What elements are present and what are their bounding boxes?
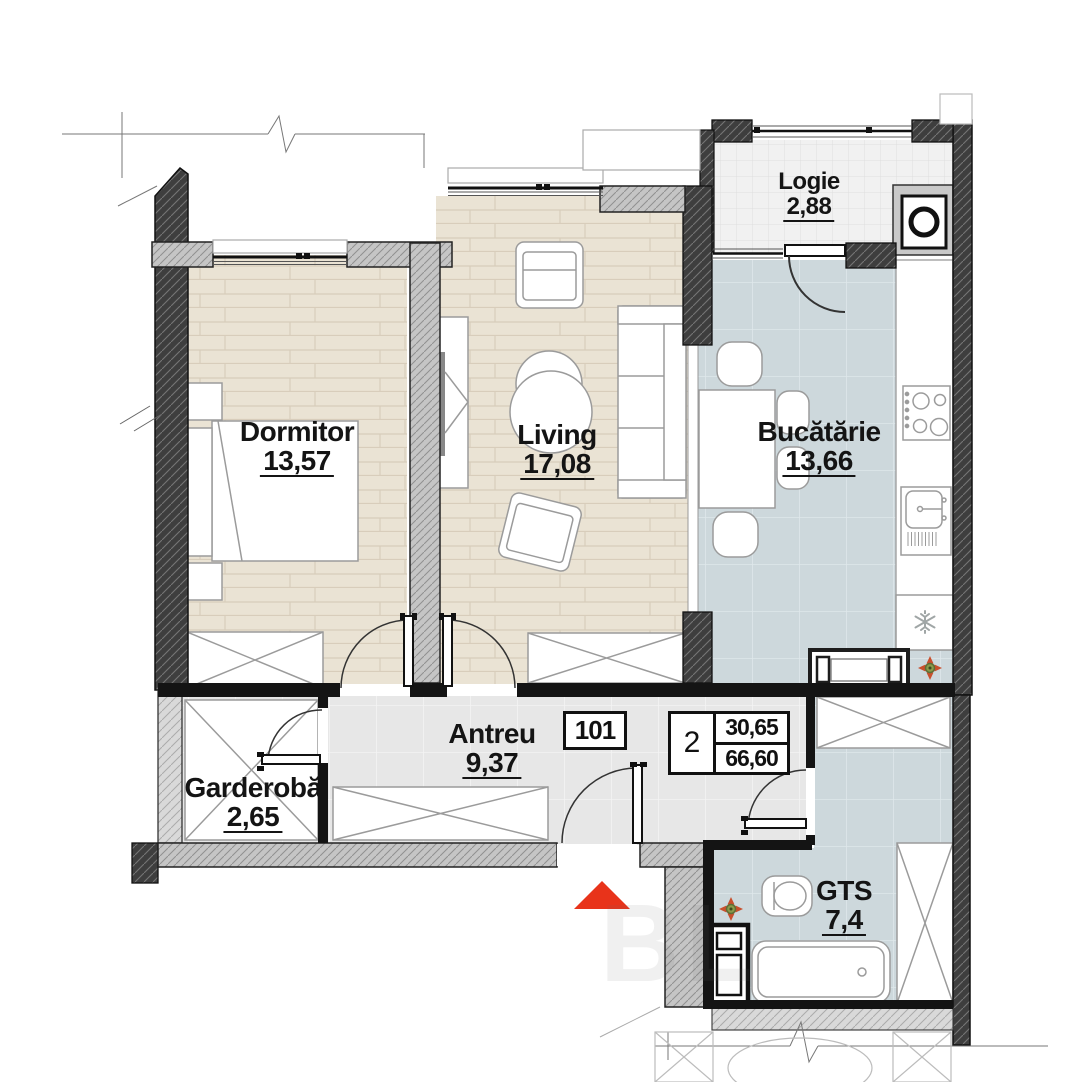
floor-plan-svg <box>0 0 1066 1082</box>
room-name: Dormitor <box>240 417 354 446</box>
garderoba-wall <box>318 697 328 708</box>
exterior-wall-right-lower <box>953 695 970 1045</box>
room-label-bucatarie: Bucătărie 13,66 <box>757 417 880 477</box>
toilet-icon <box>762 876 812 916</box>
gts-left-wall <box>703 848 714 1005</box>
chair-icon <box>713 512 758 557</box>
gts-bottom-wall <box>703 1000 953 1009</box>
living-area-value: 30,65 <box>716 714 787 745</box>
room-name: Living <box>517 420 596 449</box>
wardrobe-icon <box>817 697 950 748</box>
exterior-sill <box>940 94 972 124</box>
wardrobe-icon <box>333 787 548 840</box>
living-top-wall <box>600 186 685 212</box>
room-label-logie: Logie 2,88 <box>778 170 840 222</box>
sink-icon <box>901 487 951 555</box>
washing-machine-icon <box>710 925 748 1003</box>
entrance-arrow-icon <box>574 881 630 909</box>
headboard <box>186 428 212 556</box>
wardrobe-icon <box>187 632 323 688</box>
apartment-number-badge: 101 <box>563 711 627 750</box>
break-symbol <box>268 116 295 152</box>
nightstand <box>187 383 222 420</box>
room-label-antreu: Antreu 9,37 <box>448 719 535 779</box>
exterior-sill <box>583 130 700 170</box>
gts-outer-wall <box>665 867 708 1007</box>
room-area: 7,4 <box>822 905 865 936</box>
window-sill <box>213 240 347 253</box>
logie-top-wall <box>712 120 752 142</box>
room-label-living: Living 17,08 <box>517 420 596 480</box>
wall-stub <box>132 843 158 883</box>
antreu-gts-wall <box>806 697 815 768</box>
gts-bottom-band <box>712 1008 953 1030</box>
bench-icon <box>810 650 908 688</box>
armchair-icon <box>516 242 583 308</box>
floor-plan-page: BL Dormitor 13,57 Living 17,08 Bucătărie… <box>0 0 1066 1082</box>
room-label-dormitor: Dormitor 13,57 <box>240 417 354 477</box>
room-area: 13,66 <box>782 446 856 477</box>
antreu-top-wall <box>517 683 955 697</box>
exterior-wall-right <box>953 120 972 695</box>
room-name: Garderobă <box>184 773 321 802</box>
window-sill <box>448 168 603 183</box>
wardrobe-icon <box>897 843 953 1003</box>
gts-top-wall <box>703 840 812 850</box>
kitchen-top-wall <box>846 243 896 268</box>
room-label-gts: GTS 7,4 <box>816 876 872 936</box>
antreu-top-wall <box>410 683 447 697</box>
room-label-garderoba: Garderobă 2,65 <box>184 773 321 833</box>
kitchen-counter <box>896 260 953 650</box>
dormitor-top-wall <box>152 242 213 267</box>
neighbor-outlines <box>655 1032 951 1082</box>
antreu-top-wall <box>158 683 340 697</box>
nightstand <box>187 563 222 600</box>
rooms-count: 2 <box>671 714 716 772</box>
sofa-icon <box>618 306 686 498</box>
room-area: 2,65 <box>224 802 283 833</box>
room-name: Antreu <box>448 719 535 748</box>
bottom-wall <box>640 843 712 867</box>
living-kitchen-wall-upper <box>683 186 712 345</box>
room-name: GTS <box>816 876 872 905</box>
living-kitchen-wall-lower <box>683 612 712 683</box>
wardrobe-icon <box>528 633 685 683</box>
washing-machine-icon <box>893 185 953 255</box>
room-area: 17,08 <box>520 449 594 480</box>
room-name: Logie <box>778 170 840 195</box>
total-area-value: 66,60 <box>716 745 787 773</box>
room-area: 13,57 <box>260 446 334 477</box>
room-area: 2,88 <box>784 195 835 222</box>
fridge <box>896 595 953 650</box>
stove-icon <box>903 386 950 440</box>
room-area: 9,37 <box>463 748 522 779</box>
living-kitchen-passage <box>688 345 698 612</box>
bathtub-icon <box>752 941 890 1003</box>
garderoba-left-wall <box>158 690 182 843</box>
unit-info-table: 2 30,65 66,60 <box>668 711 790 775</box>
chair-icon <box>717 342 762 386</box>
room-name: Bucătărie <box>757 417 880 446</box>
bottom-wall <box>158 843 557 867</box>
